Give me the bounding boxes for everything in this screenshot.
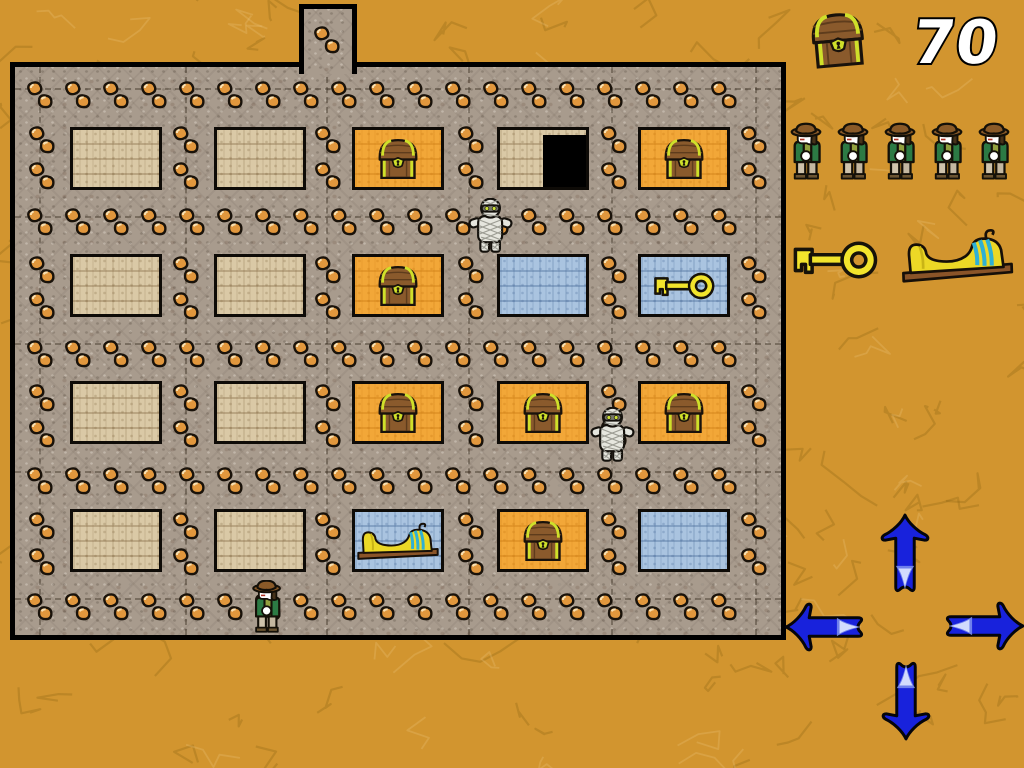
pebbles-icon (25, 592, 55, 622)
pebbles-icon (291, 339, 321, 369)
pebbles-icon (313, 291, 343, 321)
chest-icon (658, 389, 710, 437)
pebbles-icon (456, 547, 486, 577)
pebbles-icon (63, 592, 93, 622)
pebbles-icon (253, 466, 283, 496)
pebbles-icon (595, 592, 625, 622)
pebbles-icon (63, 80, 93, 110)
pebbles-icon (709, 466, 739, 496)
score-value: 70 (894, 8, 1019, 78)
pebbles-icon (313, 547, 343, 577)
pebbles-icon (171, 511, 201, 541)
pebbles-icon (139, 80, 169, 110)
pebbles-icon (313, 383, 343, 413)
pebbles-icon (27, 125, 57, 155)
chest-icon (658, 135, 710, 183)
pebbles-icon (329, 466, 359, 496)
pebbles-icon (557, 207, 587, 237)
pebbles-icon (456, 383, 486, 413)
tomb-entrance-passage (299, 4, 357, 74)
pebbles-icon (63, 339, 93, 369)
pebbles-icon (215, 466, 245, 496)
game-screen: 70 (0, 0, 1024, 768)
pebbles-icon (139, 592, 169, 622)
pebbles-icon (367, 339, 397, 369)
pebbles-icon (139, 466, 169, 496)
lives-counter (785, 112, 1021, 190)
pebbles-icon (101, 339, 131, 369)
explorer-icon (785, 116, 830, 190)
mummy-sprite (589, 407, 636, 465)
pebbles-icon (27, 255, 57, 285)
pebbles-icon (481, 592, 511, 622)
pebbles-icon (456, 125, 486, 155)
pebbles-icon (633, 207, 663, 237)
pebbles-icon (405, 592, 435, 622)
board-cell-r4c5 (638, 509, 730, 572)
pebbles-icon (291, 207, 321, 237)
pebbles-icon (599, 547, 629, 577)
pebbles-icon (27, 161, 57, 191)
pebbles-icon (215, 339, 245, 369)
chest-icon (372, 135, 424, 183)
board-cell-r3c2 (214, 381, 306, 444)
pebbles-icon (171, 383, 201, 413)
pebbles-icon (599, 511, 629, 541)
pebbles-icon (177, 592, 207, 622)
up-arrow-icon (872, 513, 938, 599)
pebbles-icon (599, 291, 629, 321)
right-arrow-icon (939, 593, 1024, 659)
pebbles-icon (739, 125, 769, 155)
board-cell-r2c3 (352, 254, 444, 317)
pebbles-icon (313, 255, 343, 285)
sarcophagus-icon (355, 519, 441, 562)
pebbles-icon (101, 80, 131, 110)
up-arrow-button[interactable] (868, 512, 942, 600)
left-arrow-icon (784, 594, 870, 660)
mummy-sprite (467, 198, 514, 256)
pebbles-icon (253, 339, 283, 369)
key-icon (791, 237, 879, 283)
board-cell-r2c4 (497, 254, 589, 317)
pebbles-icon (329, 339, 359, 369)
pebbles-icon (171, 547, 201, 577)
pebbles-icon (215, 592, 245, 622)
pebbles-icon (633, 466, 663, 496)
pebbles-icon (27, 511, 57, 541)
pebbles-icon (739, 383, 769, 413)
pebbles-icon (405, 207, 435, 237)
pebbles-icon (25, 207, 55, 237)
pebbles-icon (671, 592, 701, 622)
pebbles-icon (25, 339, 55, 369)
pebbles-icon (443, 592, 473, 622)
pebbles-icon (739, 419, 769, 449)
pebbles-icon (709, 80, 739, 110)
board-cell-r1c4 (497, 127, 589, 190)
pebbles-icon (557, 466, 587, 496)
pebbles-icon (443, 339, 473, 369)
pebbles-icon (456, 511, 486, 541)
pebbles-icon (367, 80, 397, 110)
pebbles-icon (671, 339, 701, 369)
pebbles-icon (215, 207, 245, 237)
pebbles-icon (367, 466, 397, 496)
down-arrow-icon (873, 655, 939, 741)
pebbles-icon (139, 207, 169, 237)
board-cell-r3c1 (70, 381, 162, 444)
chest-icon (372, 389, 424, 437)
pebbles-icon (171, 291, 201, 321)
board-cell-r3c4 (497, 381, 589, 444)
explorer-sprite (245, 580, 291, 636)
pebbles-icon (557, 80, 587, 110)
pebbles-icon (313, 511, 343, 541)
key-icon (652, 269, 716, 302)
pebbles-icon (739, 291, 769, 321)
pebbles-icon (456, 419, 486, 449)
pebbles-icon (557, 339, 587, 369)
pebbles-icon (313, 161, 343, 191)
pebbles-icon (25, 466, 55, 496)
explorer-icon (973, 116, 1018, 190)
pebbles-icon (456, 161, 486, 191)
pebbles-icon (171, 125, 201, 155)
pebbles-icon (27, 419, 57, 449)
pebbles-icon (27, 547, 57, 577)
pebbles-icon (171, 161, 201, 191)
pebbles-icon (177, 339, 207, 369)
pebbles-icon (519, 80, 549, 110)
board-cell-r4c4 (497, 509, 589, 572)
pebbles-icon (171, 419, 201, 449)
pebbles-icon (291, 592, 321, 622)
pebbles-icon (177, 466, 207, 496)
pebbles-icon (595, 80, 625, 110)
treasure-chest-icon (797, 5, 878, 75)
pebbles-icon (443, 80, 473, 110)
pebbles-icon (599, 161, 629, 191)
pebbles-icon (329, 80, 359, 110)
explorer-icon (926, 116, 971, 190)
right-arrow-button[interactable] (945, 584, 1019, 668)
pebbles-icon (633, 592, 663, 622)
pebbles-icon (557, 592, 587, 622)
board-cell-r3c3 (352, 381, 444, 444)
pebbles-icon (63, 207, 93, 237)
chest-icon (517, 517, 569, 565)
pebbles-icon (25, 80, 55, 110)
pebbles-icon (709, 339, 739, 369)
pebbles-icon (329, 592, 359, 622)
pebbles-icon (101, 466, 131, 496)
pebbles-icon (599, 125, 629, 155)
doorway (543, 135, 586, 187)
pebbles-icon (519, 466, 549, 496)
board-cell-r1c1 (70, 127, 162, 190)
board-cell-r2c5 (638, 254, 730, 317)
pebbles-icon (253, 207, 283, 237)
board-cell-r4c3 (352, 509, 444, 572)
pebbles-icon (313, 419, 343, 449)
pebbles-icon (312, 25, 342, 55)
pebbles-icon (481, 339, 511, 369)
pebbles-icon (599, 255, 629, 285)
pebbles-icon (671, 207, 701, 237)
pebbles-icon (671, 466, 701, 496)
down-arrow-button[interactable] (870, 655, 942, 741)
pebbles-icon (329, 207, 359, 237)
pebbles-icon (633, 339, 663, 369)
pebbles-icon (671, 80, 701, 110)
pebbles-icon (405, 80, 435, 110)
pebbles-icon (519, 592, 549, 622)
board-cell-r4c2 (214, 509, 306, 572)
board-cell-r2c1 (70, 254, 162, 317)
pebbles-icon (367, 592, 397, 622)
pebbles-icon (709, 592, 739, 622)
pebbles-icon (177, 207, 207, 237)
board-cell-r1c5 (638, 127, 730, 190)
board-cell-r2c2 (214, 254, 306, 317)
pebbles-icon (101, 592, 131, 622)
pebbles-icon (519, 339, 549, 369)
explorer-icon (879, 116, 924, 190)
pebbles-icon (171, 255, 201, 285)
pebbles-icon (595, 466, 625, 496)
pebbles-icon (405, 339, 435, 369)
pebbles-icon (456, 255, 486, 285)
pebbles-icon (27, 291, 57, 321)
board-cell-r3c5 (638, 381, 730, 444)
sarcophagus-icon (894, 225, 1020, 285)
pebbles-icon (633, 80, 663, 110)
pebbles-icon (101, 207, 131, 237)
pebbles-icon (139, 339, 169, 369)
pebbles-icon (253, 80, 283, 110)
chest-icon (372, 262, 424, 310)
pebbles-icon (739, 511, 769, 541)
pebbles-icon (456, 291, 486, 321)
pebbles-icon (519, 207, 549, 237)
game-board (10, 62, 786, 640)
chest-icon (517, 389, 569, 437)
pebbles-icon (739, 547, 769, 577)
pebbles-icon (215, 80, 245, 110)
pebbles-icon (63, 466, 93, 496)
pebbles-icon (291, 80, 321, 110)
pebbles-icon (739, 161, 769, 191)
pebbles-icon (481, 466, 511, 496)
pebbles-icon (367, 207, 397, 237)
left-arrow-button[interactable] (789, 586, 865, 668)
pebbles-icon (595, 339, 625, 369)
pebbles-icon (177, 80, 207, 110)
pebbles-icon (443, 466, 473, 496)
board-cell-r1c2 (214, 127, 306, 190)
pebbles-icon (405, 466, 435, 496)
explorer-icon (832, 116, 877, 190)
pebbles-icon (595, 207, 625, 237)
pebbles-icon (291, 466, 321, 496)
pebbles-icon (709, 207, 739, 237)
pebbles-icon (313, 125, 343, 155)
pebbles-icon (481, 80, 511, 110)
pebbles-icon (27, 383, 57, 413)
pebbles-icon (739, 255, 769, 285)
board-cell-r1c3 (352, 127, 444, 190)
board-cell-r4c1 (70, 509, 162, 572)
